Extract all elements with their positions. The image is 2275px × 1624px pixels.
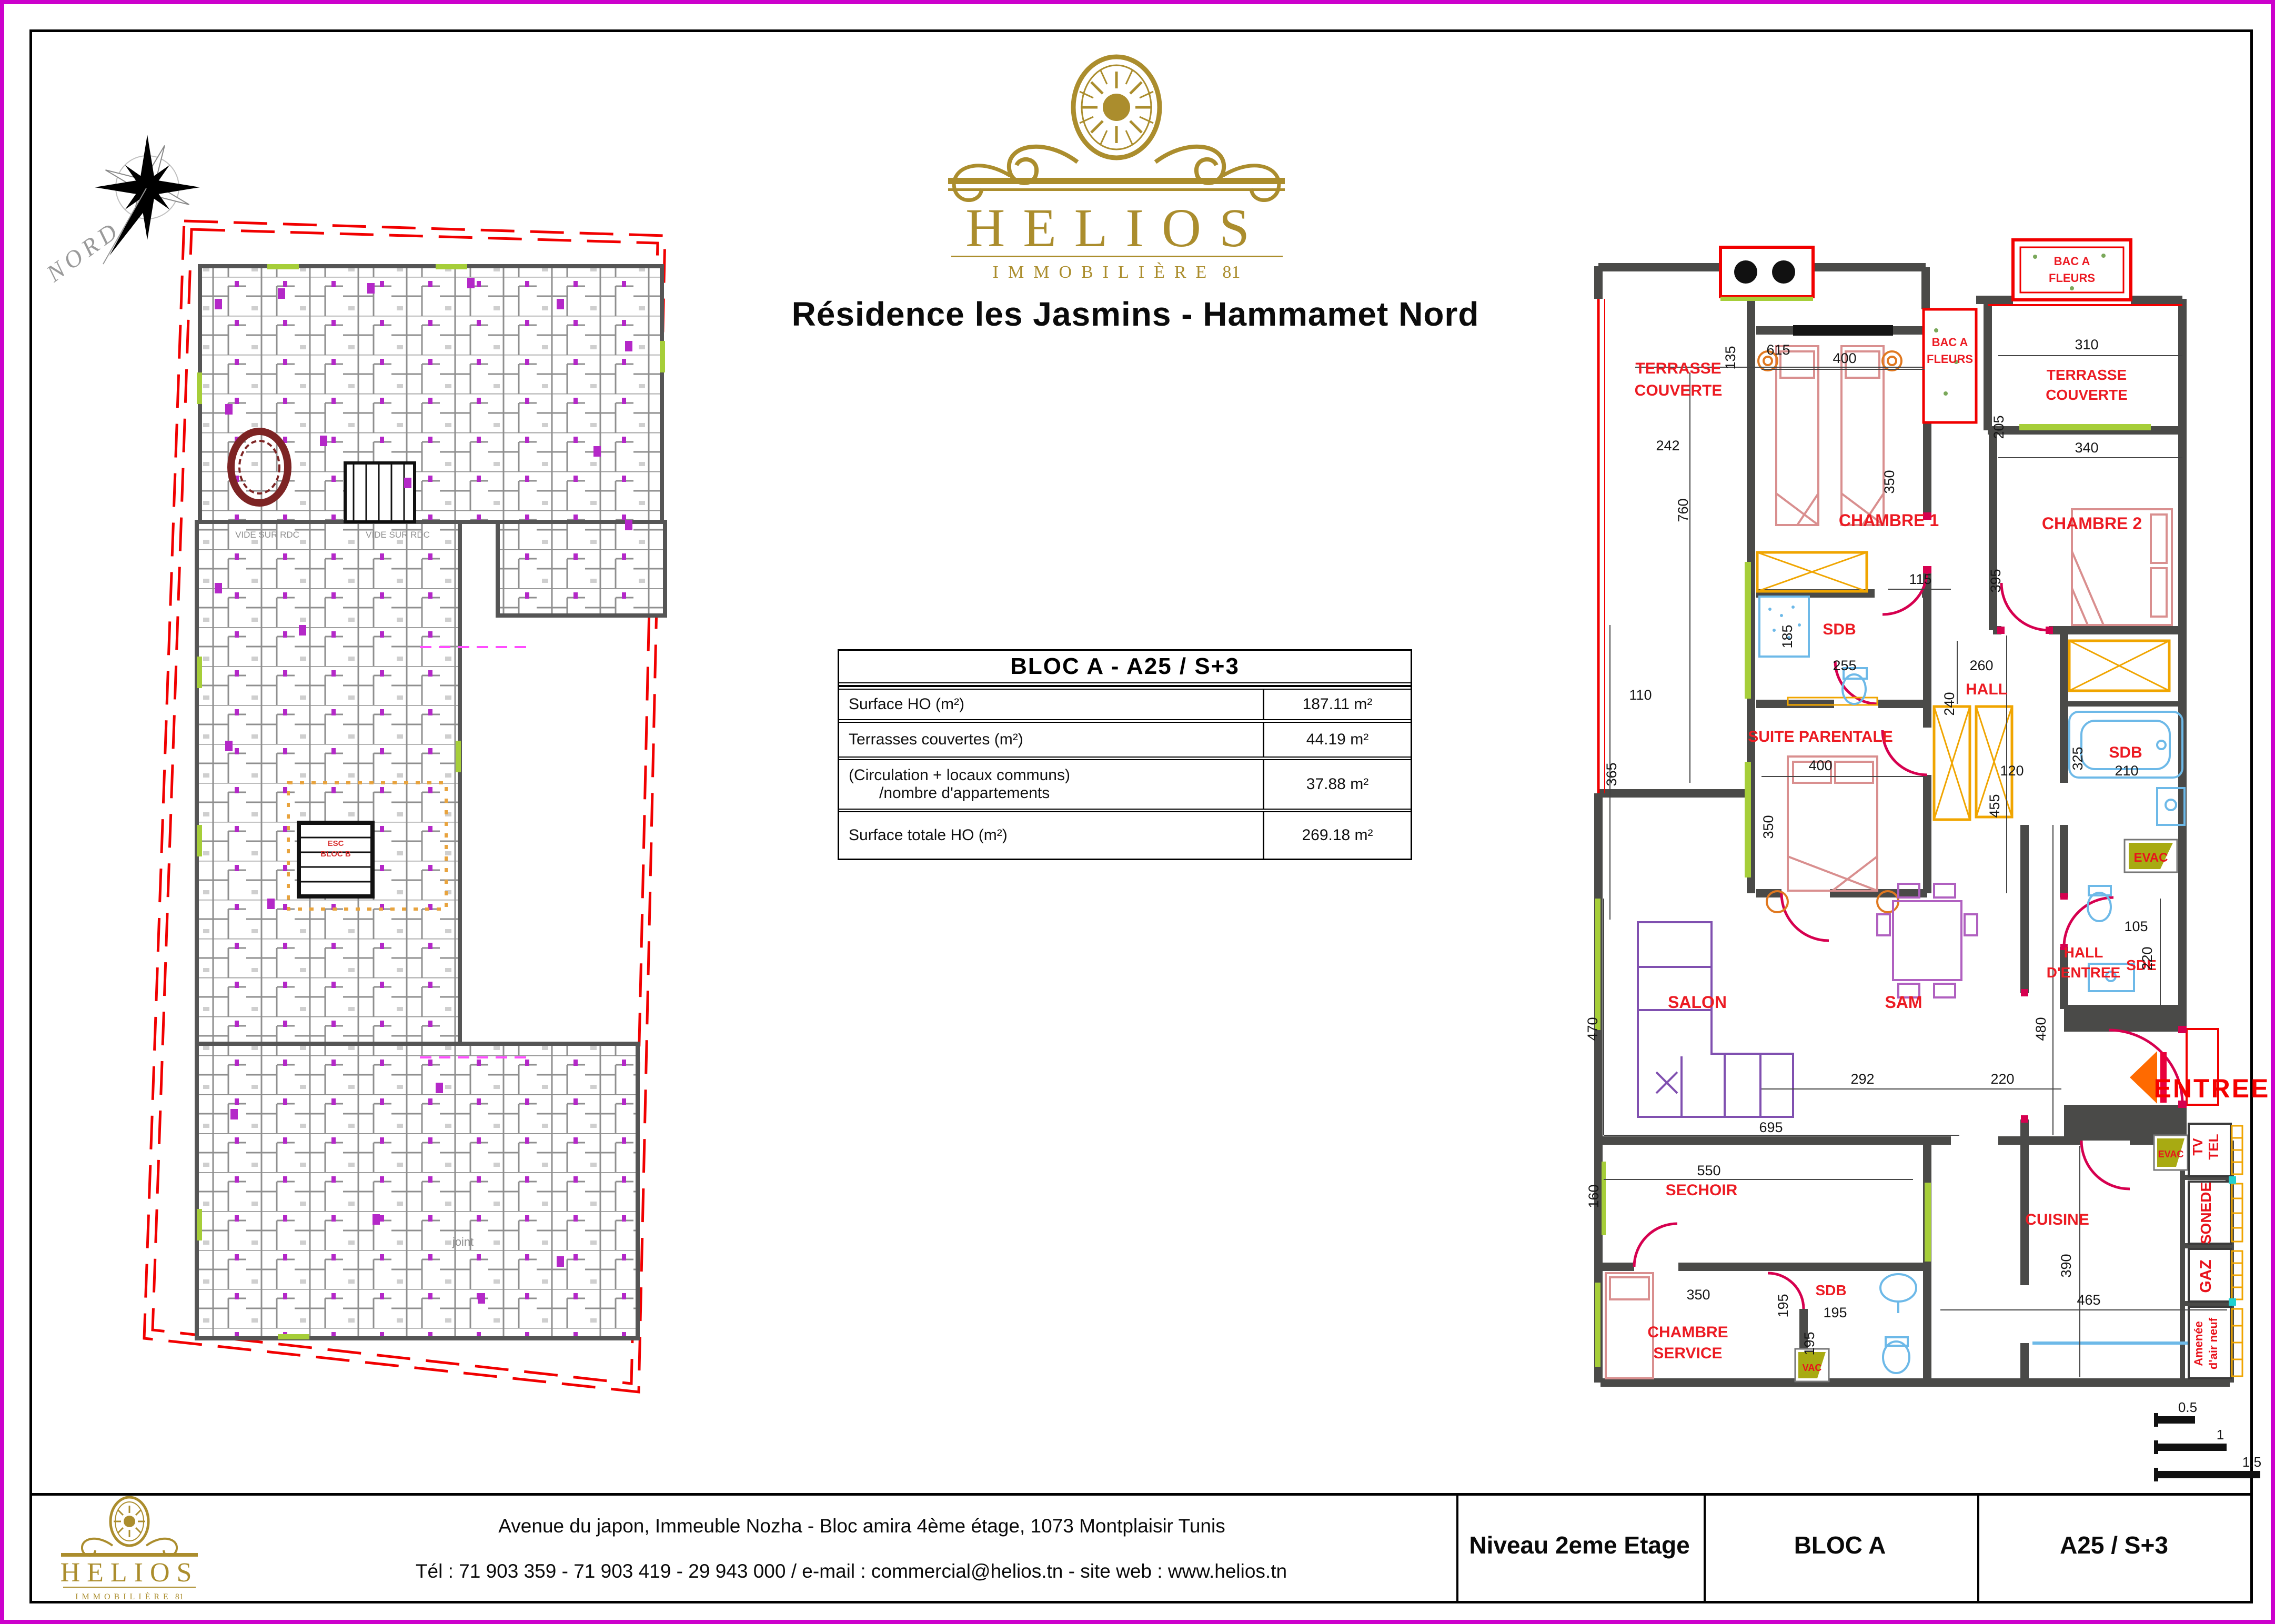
plan-label: BLOC B xyxy=(320,850,351,859)
plan-label: EVAC xyxy=(2134,851,2168,865)
table-row: Surface HO (m²) 187.11 m² xyxy=(839,686,1411,719)
plan-label: 160 xyxy=(1586,1184,1602,1208)
row-value: 37.88 m² xyxy=(1263,760,1411,809)
row-label: Surface totale HO (m²) xyxy=(849,826,1260,844)
plan-label: 325 xyxy=(2070,747,2086,770)
footer-brand-rule xyxy=(63,1587,196,1588)
plan-label: FLEURS xyxy=(2049,271,2095,285)
plan-label: FLEURS xyxy=(1927,352,1973,366)
room-label: SDB xyxy=(1815,1282,1846,1298)
scale-labels: 0.511.5 xyxy=(2178,1399,2261,1470)
site-marker xyxy=(557,299,564,309)
page-title: Résidence les Jasmins - Hammamet Nord xyxy=(662,295,1609,334)
plan-label: 195 xyxy=(1801,1332,1817,1355)
vent-dot xyxy=(1772,260,1795,284)
site-marker xyxy=(593,446,601,457)
footer-unit: A25 / S+3 xyxy=(1978,1531,2250,1559)
plan-label: 400 xyxy=(1808,758,1832,773)
row-label: (Circulation + locaux communs) xyxy=(849,766,1260,784)
room-label: COUVERTE xyxy=(1635,382,1723,399)
site-marker xyxy=(278,288,285,299)
room-label: SAM xyxy=(1885,993,1922,1012)
svg-text:IMMOBILIÈRE81: IMMOBILIÈRE81 xyxy=(993,263,1241,282)
site-marker xyxy=(215,299,222,309)
wall-mass xyxy=(2064,1006,2182,1032)
north-arrow-icon: NORD xyxy=(41,128,206,287)
row-label-line2: /nombre d'appartements xyxy=(849,784,1260,802)
plan-label: 205 xyxy=(1991,415,2007,439)
plan-label: 242 xyxy=(1656,438,1679,453)
plan-label: 210 xyxy=(2115,763,2138,779)
plan-label: Amenée xyxy=(2192,1321,2205,1366)
room-label: COUVERTE xyxy=(2046,387,2128,403)
building-footprint xyxy=(197,266,665,1338)
svg-text:IMMOBILIÈRE81: IMMOBILIÈRE81 xyxy=(75,1591,184,1601)
plan-label: VIDE SUR RDC xyxy=(366,530,430,540)
plan-label: 135 xyxy=(1723,346,1738,369)
plan-label: 695 xyxy=(1759,1119,1783,1135)
room-label: CHAMBRE xyxy=(1647,1324,1728,1341)
site-marker xyxy=(299,625,306,636)
plan-label: 120 xyxy=(2000,763,2024,779)
plan-label: 1.5 xyxy=(2242,1454,2261,1470)
room-label: CHAMBRE 1 xyxy=(1839,511,1939,530)
footer-brand-subtitle-number: 81 xyxy=(175,1592,184,1601)
plan-label: 400 xyxy=(1833,350,1856,366)
site-marker xyxy=(625,520,632,530)
area-table-title: BLOC A - A25 / S+3 xyxy=(839,651,1411,686)
utility-node xyxy=(2229,1298,2236,1306)
footer-brand-subtitle: IMMOBILIÈRE xyxy=(75,1591,172,1601)
site-marker xyxy=(373,1214,380,1225)
site-marker xyxy=(467,278,475,288)
plan-label: 760 xyxy=(1675,498,1691,522)
window-lintel xyxy=(1793,325,1893,336)
room-label: CHAMBRE 2 xyxy=(2042,514,2142,533)
site-marker xyxy=(557,1256,564,1267)
plan-label: 260 xyxy=(1969,658,1993,673)
plan-label: EVAC xyxy=(2158,1149,2184,1159)
room-label: SDB xyxy=(1823,621,1856,638)
plan-label: VAC xyxy=(1803,1363,1822,1373)
site-marker xyxy=(225,404,233,415)
room-label: TERRASSE xyxy=(2047,367,2127,383)
footer-logo: HELIOS IMMOBILIÈRE81 xyxy=(61,1497,199,1601)
apartment-walls xyxy=(1598,266,2230,1383)
plan-label: 115 xyxy=(1909,571,1931,587)
footer-bloc: BLOC A xyxy=(1705,1531,1975,1559)
plan-label: 340 xyxy=(2075,440,2098,456)
plan-label: 110 xyxy=(1629,687,1652,703)
plan-label: BAC A xyxy=(1932,336,1968,349)
site-marker xyxy=(404,478,411,488)
helios-logo: HELIOS IMMOBILIÈRE81 xyxy=(948,57,1285,282)
plan-label: 615 xyxy=(1766,342,1790,358)
plan-label: 550 xyxy=(1697,1163,1720,1178)
plan-label: 480 xyxy=(2033,1017,2049,1041)
footer-brand-name: HELIOS xyxy=(61,1558,199,1588)
plan-label: 255 xyxy=(1833,658,1856,673)
logo-sun-icon xyxy=(948,70,1285,191)
brand-subtitle-number: 81 xyxy=(1222,263,1240,282)
row-label: Surface HO (m²) xyxy=(849,695,1260,713)
site-marker xyxy=(320,436,327,446)
plan-label: 465 xyxy=(2077,1292,2100,1308)
room-label: SECHOIR xyxy=(1666,1182,1738,1199)
utility-node xyxy=(2229,1176,2236,1184)
plan-sheet: NORD HELIOS xyxy=(0,0,2275,1624)
table-row: Terrasses couvertes (m²) 44.19 m² xyxy=(839,719,1411,756)
plan-label: BAC A xyxy=(2054,255,2090,268)
site-marker xyxy=(625,341,632,351)
plan-label: 185 xyxy=(1779,624,1795,648)
site-marker xyxy=(215,583,222,593)
closets xyxy=(1757,552,2169,820)
plan-label: 470 xyxy=(1585,1017,1600,1041)
table-row: Surface totale HO (m²) 269.18 m² xyxy=(839,809,1411,859)
plan-label: 220 xyxy=(2139,946,2155,970)
apartment-plan: TERRASSECOUVERTEBAC AFLEURSBAC AFLEURSTE… xyxy=(1585,240,2270,1481)
room-label: HALL xyxy=(1966,681,2008,698)
plan-label: 292 xyxy=(1850,1071,1874,1087)
plan-label: TV xyxy=(2190,1138,2206,1156)
area-table: BLOC A - A25 / S+3 Surface HO (m²) 187.1… xyxy=(838,649,1412,860)
plan-label: ESC xyxy=(328,839,344,848)
plan-label: 390 xyxy=(2058,1254,2074,1277)
scale-bars xyxy=(2154,1413,2260,1481)
plan-label: 395 xyxy=(1988,569,2004,592)
table-row: (Circulation + locaux communs) /nombre d… xyxy=(839,756,1411,809)
plan-label: 0.5 xyxy=(2178,1399,2197,1415)
plan-label: 350 xyxy=(1881,470,1897,493)
plan-label: GAZ xyxy=(2197,1259,2214,1293)
brand-name: HELIOS xyxy=(965,198,1267,258)
room-label: TERRASSE xyxy=(1635,360,1721,377)
plan-label: VIDE SUR RDC xyxy=(235,530,299,540)
footer-level: Niveau 2eme Etage xyxy=(1457,1531,1702,1559)
row-value: 44.19 m² xyxy=(1263,723,1411,756)
plan-label: 195 xyxy=(1775,1294,1791,1317)
room-label: SDB xyxy=(2109,744,2142,761)
room-label: SALON xyxy=(1668,993,1727,1012)
plan-label: d'air neuf xyxy=(2207,1317,2220,1369)
footer-contact: Tél : 71 903 359 - 71 903 419 - 29 943 0… xyxy=(257,1560,1446,1582)
plan-label: 1 xyxy=(2217,1427,2224,1443)
brand-subtitle: IMMOBILIÈRE xyxy=(993,263,1216,282)
row-label: Terrasses couvertes (m²) xyxy=(849,731,1260,749)
vent-dot xyxy=(1734,260,1757,284)
plan-label: 105 xyxy=(2124,919,2148,934)
row-value: 269.18 m² xyxy=(1263,812,1411,859)
room-label: SUITE PARENTALE xyxy=(1748,728,1893,745)
site-marker xyxy=(478,1293,485,1304)
plan-label: 195 xyxy=(1823,1305,1847,1320)
room-label: SERVICE xyxy=(1653,1345,1722,1362)
row-value: 187.11 m² xyxy=(1263,690,1411,719)
site-plan: VIDE SUR RDCVIDE SUR RDCESCBLOC Bjoint xyxy=(144,221,665,1392)
footer-address: Avenue du japon, Immeuble Nozha - Bloc a… xyxy=(299,1515,1425,1537)
north-label: NORD xyxy=(41,215,126,287)
room-label: HALL xyxy=(2064,944,2103,961)
site-marker xyxy=(225,741,233,751)
plan-label: joint xyxy=(452,1235,474,1248)
plan-label: 455 xyxy=(1987,794,2002,818)
plan-label: 350 xyxy=(1686,1287,1710,1303)
plan-label: 310 xyxy=(2075,337,2098,352)
plan-label: 350 xyxy=(1760,815,1776,839)
plan-label: SONEDE xyxy=(2198,1182,2214,1244)
site-marker xyxy=(436,1083,443,1093)
room-label: CUISINE xyxy=(2025,1211,2089,1228)
room-label: D'ENTREE xyxy=(2047,964,2120,981)
plan-label: 240 xyxy=(1941,692,1957,715)
bath-fixtures xyxy=(1759,597,2227,1373)
plan-label: 365 xyxy=(1604,762,1619,786)
plan-label: TEL xyxy=(2206,1134,2221,1159)
site-marker xyxy=(367,283,375,294)
plan-label: 220 xyxy=(1990,1071,2014,1087)
site-marker xyxy=(230,1109,238,1119)
brand-rule xyxy=(951,256,1283,257)
site-marker xyxy=(267,899,275,909)
plan-label: ENTREE xyxy=(2154,1074,2270,1103)
